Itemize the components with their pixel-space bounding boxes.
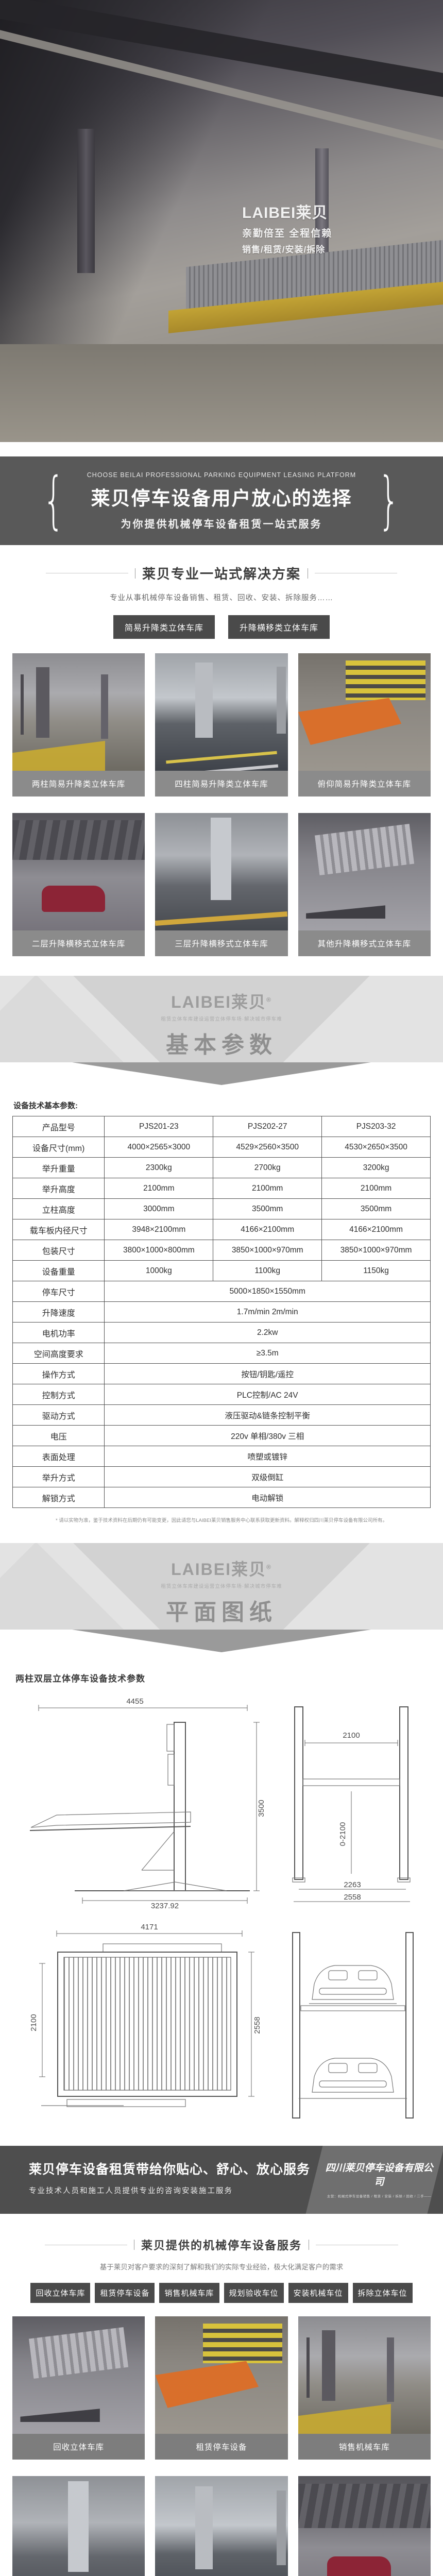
gallery-caption: 其他升降横移式立体车库 bbox=[298, 930, 431, 956]
gallery-photo bbox=[155, 813, 287, 930]
service-caption: 回收立体车库 bbox=[12, 2434, 145, 2460]
gallery-card: 俯仰简易升降类立体车库 bbox=[298, 653, 431, 796]
spec-value: 1.7m/min 2m/min bbox=[105, 1302, 431, 1323]
gallery-photo bbox=[12, 653, 145, 771]
divider-line bbox=[316, 2245, 398, 2245]
plan-drawings-banner: LAIBEI莱贝® 租赁立体车库建设运营立体停车场·解决城市停车难 平面图纸 bbox=[0, 1543, 443, 1654]
tag-recycle-garage[interactable]: 回收立体车库 bbox=[30, 2283, 90, 2303]
spec-label-cell: 解锁方式 bbox=[13, 1487, 105, 1508]
choose-banner-english: CHOOSE BEILAI PROFESSIONAL PARKING EQUIP… bbox=[87, 471, 356, 479]
spec-value: 4000×2565×3000 bbox=[105, 1137, 213, 1158]
spec-row: 解锁方式电动解锁 bbox=[13, 1487, 431, 1508]
hero-column bbox=[77, 129, 95, 273]
spec-label-cell: 包装尺寸 bbox=[13, 1240, 105, 1261]
gallery-caption: 三层升降横移式立体车库 bbox=[155, 930, 287, 956]
section-title: 基本参数 bbox=[0, 1026, 443, 1059]
brand-logo-text: LAIBEI莱贝® bbox=[0, 1556, 443, 1580]
choose-banner-subtitle: 为你提供机械停车设备租赁一站式服务 bbox=[87, 516, 356, 531]
drawing-heading: 两柱双层立体停车设备技术参数 bbox=[0, 1654, 443, 1687]
service-card: 租赁停车设备 bbox=[155, 2316, 287, 2460]
spec-row: 举升高度2100mm2100mm2100mm bbox=[13, 1178, 431, 1199]
spec-value: PJS202-27 bbox=[213, 1116, 322, 1137]
svg-text:2558: 2558 bbox=[253, 2016, 262, 2033]
spec-label-cell: 立柱高度 bbox=[13, 1199, 105, 1219]
hero-photo: LAIBEI莱贝 亲勤倍至 全程信赖 销售/租赁/安装/拆除 bbox=[0, 0, 443, 442]
spec-row: 控制方式PLC控制/AC 24V bbox=[13, 1384, 431, 1405]
service-promise-banner: 四川莱贝停车设备有限公司 主营：机械式停车设备销售 / 租赁 / 安装 / 拆除… bbox=[0, 2146, 443, 2214]
spec-value: PJS203-32 bbox=[322, 1116, 431, 1137]
spec-value: 2100mm bbox=[322, 1178, 431, 1199]
tick-decor bbox=[309, 2240, 309, 2250]
services-section: 莱贝提供的机械停车设备服务 基于莱贝对客户要求的深刻了解和我们的实际专业经验，极… bbox=[0, 2214, 443, 2303]
spec-label-cell: 举升方式 bbox=[13, 1467, 105, 1487]
service-photo bbox=[155, 2316, 287, 2434]
gallery-photo bbox=[298, 653, 431, 771]
tag-plan-acceptance[interactable]: 规划验收车位 bbox=[224, 2283, 284, 2303]
spec-value: ≥3.5m bbox=[105, 1343, 431, 1364]
spec-row: 电机功率2.2kw bbox=[13, 1323, 431, 1343]
choose-banner-title: 莱贝停车设备用户放心的选择 bbox=[87, 483, 356, 511]
spec-value: 4529×2560×3500 bbox=[213, 1137, 322, 1158]
spec-value: 按钮/钥匙/遥控 bbox=[105, 1364, 431, 1384]
spec-value: 3500mm bbox=[322, 1199, 431, 1219]
spec-row: 产品型号PJS201-23PJS202-27PJS203-32 bbox=[13, 1116, 431, 1137]
spec-row: 举升方式双级倒缸 bbox=[13, 1467, 431, 1487]
simple-lift-category-button[interactable]: 简易升降类立体车库 bbox=[113, 615, 215, 639]
svg-text:3237.92: 3237.92 bbox=[151, 1902, 179, 1909]
svg-text:3500: 3500 bbox=[257, 1800, 266, 1817]
gallery-card: 两柱简易升降类立体车库 bbox=[12, 653, 145, 796]
spec-label-cell: 设备尺寸(mm) bbox=[13, 1137, 105, 1158]
section-title: 平面图纸 bbox=[0, 1594, 443, 1626]
spec-value: 3850×1000×970mm bbox=[213, 1240, 322, 1261]
spec-value: 1100kg bbox=[213, 1261, 322, 1281]
spec-value: 4530×2650×3500 bbox=[322, 1137, 431, 1158]
solution-heading: 莱贝专业一站式解决方案 bbox=[142, 564, 301, 583]
banner-chevron-decor bbox=[72, 1630, 371, 1652]
spec-value: 2300kg bbox=[105, 1158, 213, 1178]
spec-table-label: 设备技术基本参数: bbox=[0, 1087, 443, 1116]
gallery-card: 三层升降横移式立体车库 bbox=[155, 813, 287, 956]
lift-sliding-category-button[interactable]: 升降横移类立体车库 bbox=[228, 615, 330, 639]
tick-decor bbox=[308, 568, 308, 579]
gallery-caption: 二层升降横移式立体车库 bbox=[12, 930, 145, 956]
spec-value: 5000×1850×1550mm bbox=[105, 1281, 431, 1302]
spec-row: 立柱高度3000mm3500mm3500mm bbox=[13, 1199, 431, 1219]
tag-lease-equipment[interactable]: 租赁停车设备 bbox=[95, 2283, 155, 2303]
company-name-calligraphy: 四川莱贝停车设备有限公司 bbox=[325, 2160, 433, 2188]
svg-text:2558: 2558 bbox=[344, 1893, 361, 1902]
spec-row: 空间高度要求≥3.5m bbox=[13, 1343, 431, 1364]
spec-label-cell: 载车板内径尺寸 bbox=[13, 1219, 105, 1240]
service-card: 回收立体车库 bbox=[12, 2316, 145, 2460]
divider-line bbox=[315, 573, 397, 573]
gallery-photo bbox=[12, 813, 145, 930]
drawing-stacked-cars bbox=[283, 1922, 422, 2128]
spec-value: 4166×2100mm bbox=[213, 1219, 322, 1240]
service-card: 安装机械车位 bbox=[155, 2476, 287, 2576]
spec-value: 220v 单相/380v 三相 bbox=[105, 1426, 431, 1446]
spec-label-cell: 空间高度要求 bbox=[13, 1343, 105, 1364]
tick-decor bbox=[134, 2240, 134, 2250]
drawing-top-view: 4171 2100 2558 bbox=[21, 1922, 268, 2128]
tag-sell-garage[interactable]: 销售机械车库 bbox=[159, 2283, 219, 2303]
banner-chevron-decor bbox=[72, 1062, 371, 1085]
spec-value: 4166×2100mm bbox=[322, 1219, 431, 1240]
divider-line bbox=[45, 2245, 127, 2245]
svg-text:2100: 2100 bbox=[343, 1731, 360, 1740]
basic-params-banner: LAIBEI莱贝® 租赁立体车库建设运营立体停车场·解决城市停车难 基本参数 bbox=[0, 976, 443, 1087]
spec-label-cell: 表面处理 bbox=[13, 1446, 105, 1467]
spec-value: 2.2kw bbox=[105, 1323, 431, 1343]
brand-tagline: 租赁立体车库建设运营立体停车场·解决城市停车难 bbox=[0, 1015, 443, 1022]
spec-label-cell: 举升重量 bbox=[13, 1158, 105, 1178]
choose-banner: { CHOOSE BEILAI PROFESSIONAL PARKING EQU… bbox=[0, 456, 443, 545]
spec-value: 2100mm bbox=[105, 1178, 213, 1199]
service-banner-subtitle: 专业技术人员和施工人员提供专业的咨询安装施工服务 bbox=[29, 2185, 310, 2196]
spec-label-cell: 设备重量 bbox=[13, 1261, 105, 1281]
spec-row: 操作方式按钮/钥匙/遥控 bbox=[13, 1364, 431, 1384]
spec-value: 双级倒缸 bbox=[105, 1467, 431, 1487]
service-photo bbox=[12, 2476, 145, 2576]
tag-install-space[interactable]: 安装机械车位 bbox=[288, 2283, 348, 2303]
spec-row: 停车尺寸5000×1850×1550mm bbox=[13, 1281, 431, 1302]
spec-row: 表面处理喷塑或镀锌 bbox=[13, 1446, 431, 1467]
spec-row: 驱动方式液压驱动&链条控制平衡 bbox=[13, 1405, 431, 1426]
service-banner-title: 莱贝停车设备租赁带给你贴心、舒心、放心服务 bbox=[29, 2159, 310, 2178]
spec-value: 电动解锁 bbox=[105, 1487, 431, 1508]
spec-value: 1000kg bbox=[105, 1261, 213, 1281]
spec-row: 举升重量2300kg2700kg3200kg bbox=[13, 1158, 431, 1178]
brand-slogan: 亲勤倍至 全程信赖 bbox=[242, 226, 332, 240]
tag-remove-space[interactable]: 拆除立体车位 bbox=[353, 2283, 413, 2303]
spec-value: 3000mm bbox=[105, 1199, 213, 1219]
spec-value: 3800×1000×800mm bbox=[105, 1240, 213, 1261]
spec-value: 2700kg bbox=[213, 1158, 322, 1178]
solution-subtitle: 专业从事机械停车设备销售、租赁、回收、安装、拆除服务…… bbox=[0, 592, 443, 603]
gallery-photo bbox=[298, 813, 431, 930]
spec-value: 3850×1000×970mm bbox=[322, 1240, 431, 1261]
company-parallelogram: 四川莱贝停车设备有限公司 主营：机械式停车设备销售 / 租赁 / 安装 / 拆除… bbox=[304, 2146, 443, 2214]
hero-watermark: LAIBEI莱贝 亲勤倍至 全程信赖 销售/租赁/安装/拆除 bbox=[242, 200, 332, 255]
brace-left-decor: { bbox=[43, 470, 65, 532]
svg-text:2100: 2100 bbox=[29, 2014, 38, 2031]
svg-text:4171: 4171 bbox=[141, 1923, 158, 1931]
gallery-caption: 四柱简易升降类立体车库 bbox=[155, 771, 287, 796]
spec-value: 液压驱动&链条控制平衡 bbox=[105, 1405, 431, 1426]
spec-label-cell: 操作方式 bbox=[13, 1364, 105, 1384]
spec-value: 喷塑或镀锌 bbox=[105, 1446, 431, 1467]
spec-value: 1150kg bbox=[322, 1261, 431, 1281]
service-photo bbox=[298, 2316, 431, 2434]
gallery-card: 四柱简易升降类立体车库 bbox=[155, 653, 287, 796]
spec-value: 3500mm bbox=[213, 1199, 322, 1219]
gallery-caption: 两柱简易升降类立体车库 bbox=[12, 771, 145, 796]
gallery-caption: 俯仰简易升降类立体车库 bbox=[298, 771, 431, 796]
tick-decor bbox=[135, 568, 135, 579]
spec-label-cell: 升降速度 bbox=[13, 1302, 105, 1323]
drawing-front-view: 2100 0-2100 2263 2558 bbox=[283, 1692, 422, 1909]
spec-disclaimer: * 请以实物为准，鉴于技术资料在后期仍有可能变更，因此请您与LAIBEI莱贝销售… bbox=[15, 1516, 428, 1523]
brand-services: 销售/租赁/安装/拆除 bbox=[242, 242, 332, 255]
spec-row: 电压220v 单相/380v 三相 bbox=[13, 1426, 431, 1446]
spec-value: 3948×2100mm bbox=[105, 1219, 213, 1240]
spec-row: 包装尺寸3800×1000×800mm3850×1000×970mm3850×1… bbox=[13, 1240, 431, 1261]
svg-text:0-2100: 0-2100 bbox=[338, 1822, 347, 1846]
services-heading: 莱贝提供的机械停车设备服务 bbox=[141, 2236, 302, 2253]
spec-row: 设备重量1000kg1100kg1150kg bbox=[13, 1261, 431, 1281]
spec-label-cell: 产品型号 bbox=[13, 1116, 105, 1137]
spec-row: 设备尺寸(mm)4000×2565×30004529×2560×35004530… bbox=[13, 1137, 431, 1158]
divider-line bbox=[46, 573, 128, 573]
service-photo bbox=[298, 2476, 431, 2576]
brand-tagline: 租赁立体车库建设运营立体停车场·解决城市停车难 bbox=[0, 1582, 443, 1589]
svg-text:2263: 2263 bbox=[344, 1880, 361, 1889]
spec-value: 2100mm bbox=[213, 1178, 322, 1199]
spec-label-cell: 驱动方式 bbox=[13, 1405, 105, 1426]
drawing-side-view: 4455 3500 3237.92 bbox=[21, 1692, 268, 1909]
brace-right-decor: } bbox=[378, 470, 400, 532]
spec-value: 3200kg bbox=[322, 1158, 431, 1178]
svg-text:4455: 4455 bbox=[126, 1697, 143, 1706]
brand-logo-text: LAIBEI莱贝® bbox=[0, 989, 443, 1013]
service-card: 销售机械车库 bbox=[298, 2316, 431, 2460]
service-card: 拆除立体车位 bbox=[298, 2476, 431, 2576]
company-business-scope: 主营：机械式停车设备销售 / 租赁 / 安装 / 拆除 / 回收 / 二手—— bbox=[325, 2193, 433, 2198]
spec-label-cell: 电机功率 bbox=[13, 1323, 105, 1343]
spec-row: 升降速度1.7m/min 2m/min bbox=[13, 1302, 431, 1323]
service-photo bbox=[155, 2476, 287, 2576]
service-card: 规划验收车位 bbox=[12, 2476, 145, 2576]
spec-row: 载车板内径尺寸3948×2100mm4166×2100mm4166×2100mm bbox=[13, 1219, 431, 1240]
service-caption: 销售机械车库 bbox=[298, 2434, 431, 2460]
service-caption: 租赁停车设备 bbox=[155, 2434, 287, 2460]
service-photo bbox=[12, 2316, 145, 2434]
spec-label-cell: 举升高度 bbox=[13, 1178, 105, 1199]
spec-label-cell: 控制方式 bbox=[13, 1384, 105, 1405]
spec-value: PJS201-23 bbox=[105, 1116, 213, 1137]
gallery-card: 其他升降横移式立体车库 bbox=[298, 813, 431, 956]
spec-table: 产品型号PJS201-23PJS202-27PJS203-32 设备尺寸(mm)… bbox=[12, 1116, 431, 1508]
brand-logo-text: LAIBEI莱贝 bbox=[242, 200, 332, 223]
gallery-card: 二层升降横移式立体车库 bbox=[12, 813, 145, 956]
hero-floor bbox=[0, 344, 443, 442]
services-subtitle: 基于莱贝对客户要求的深刻了解和我们的实际专业经验，极大化满足客户的需求 bbox=[0, 2261, 443, 2272]
spec-label-cell: 电压 bbox=[13, 1426, 105, 1446]
solution-section: 莱贝专业一站式解决方案 专业从事机械停车设备销售、租赁、回收、安装、拆除服务……… bbox=[0, 545, 443, 653]
spec-value: PLC控制/AC 24V bbox=[105, 1384, 431, 1405]
spec-label-cell: 停车尺寸 bbox=[13, 1281, 105, 1302]
gallery-photo bbox=[155, 653, 287, 771]
